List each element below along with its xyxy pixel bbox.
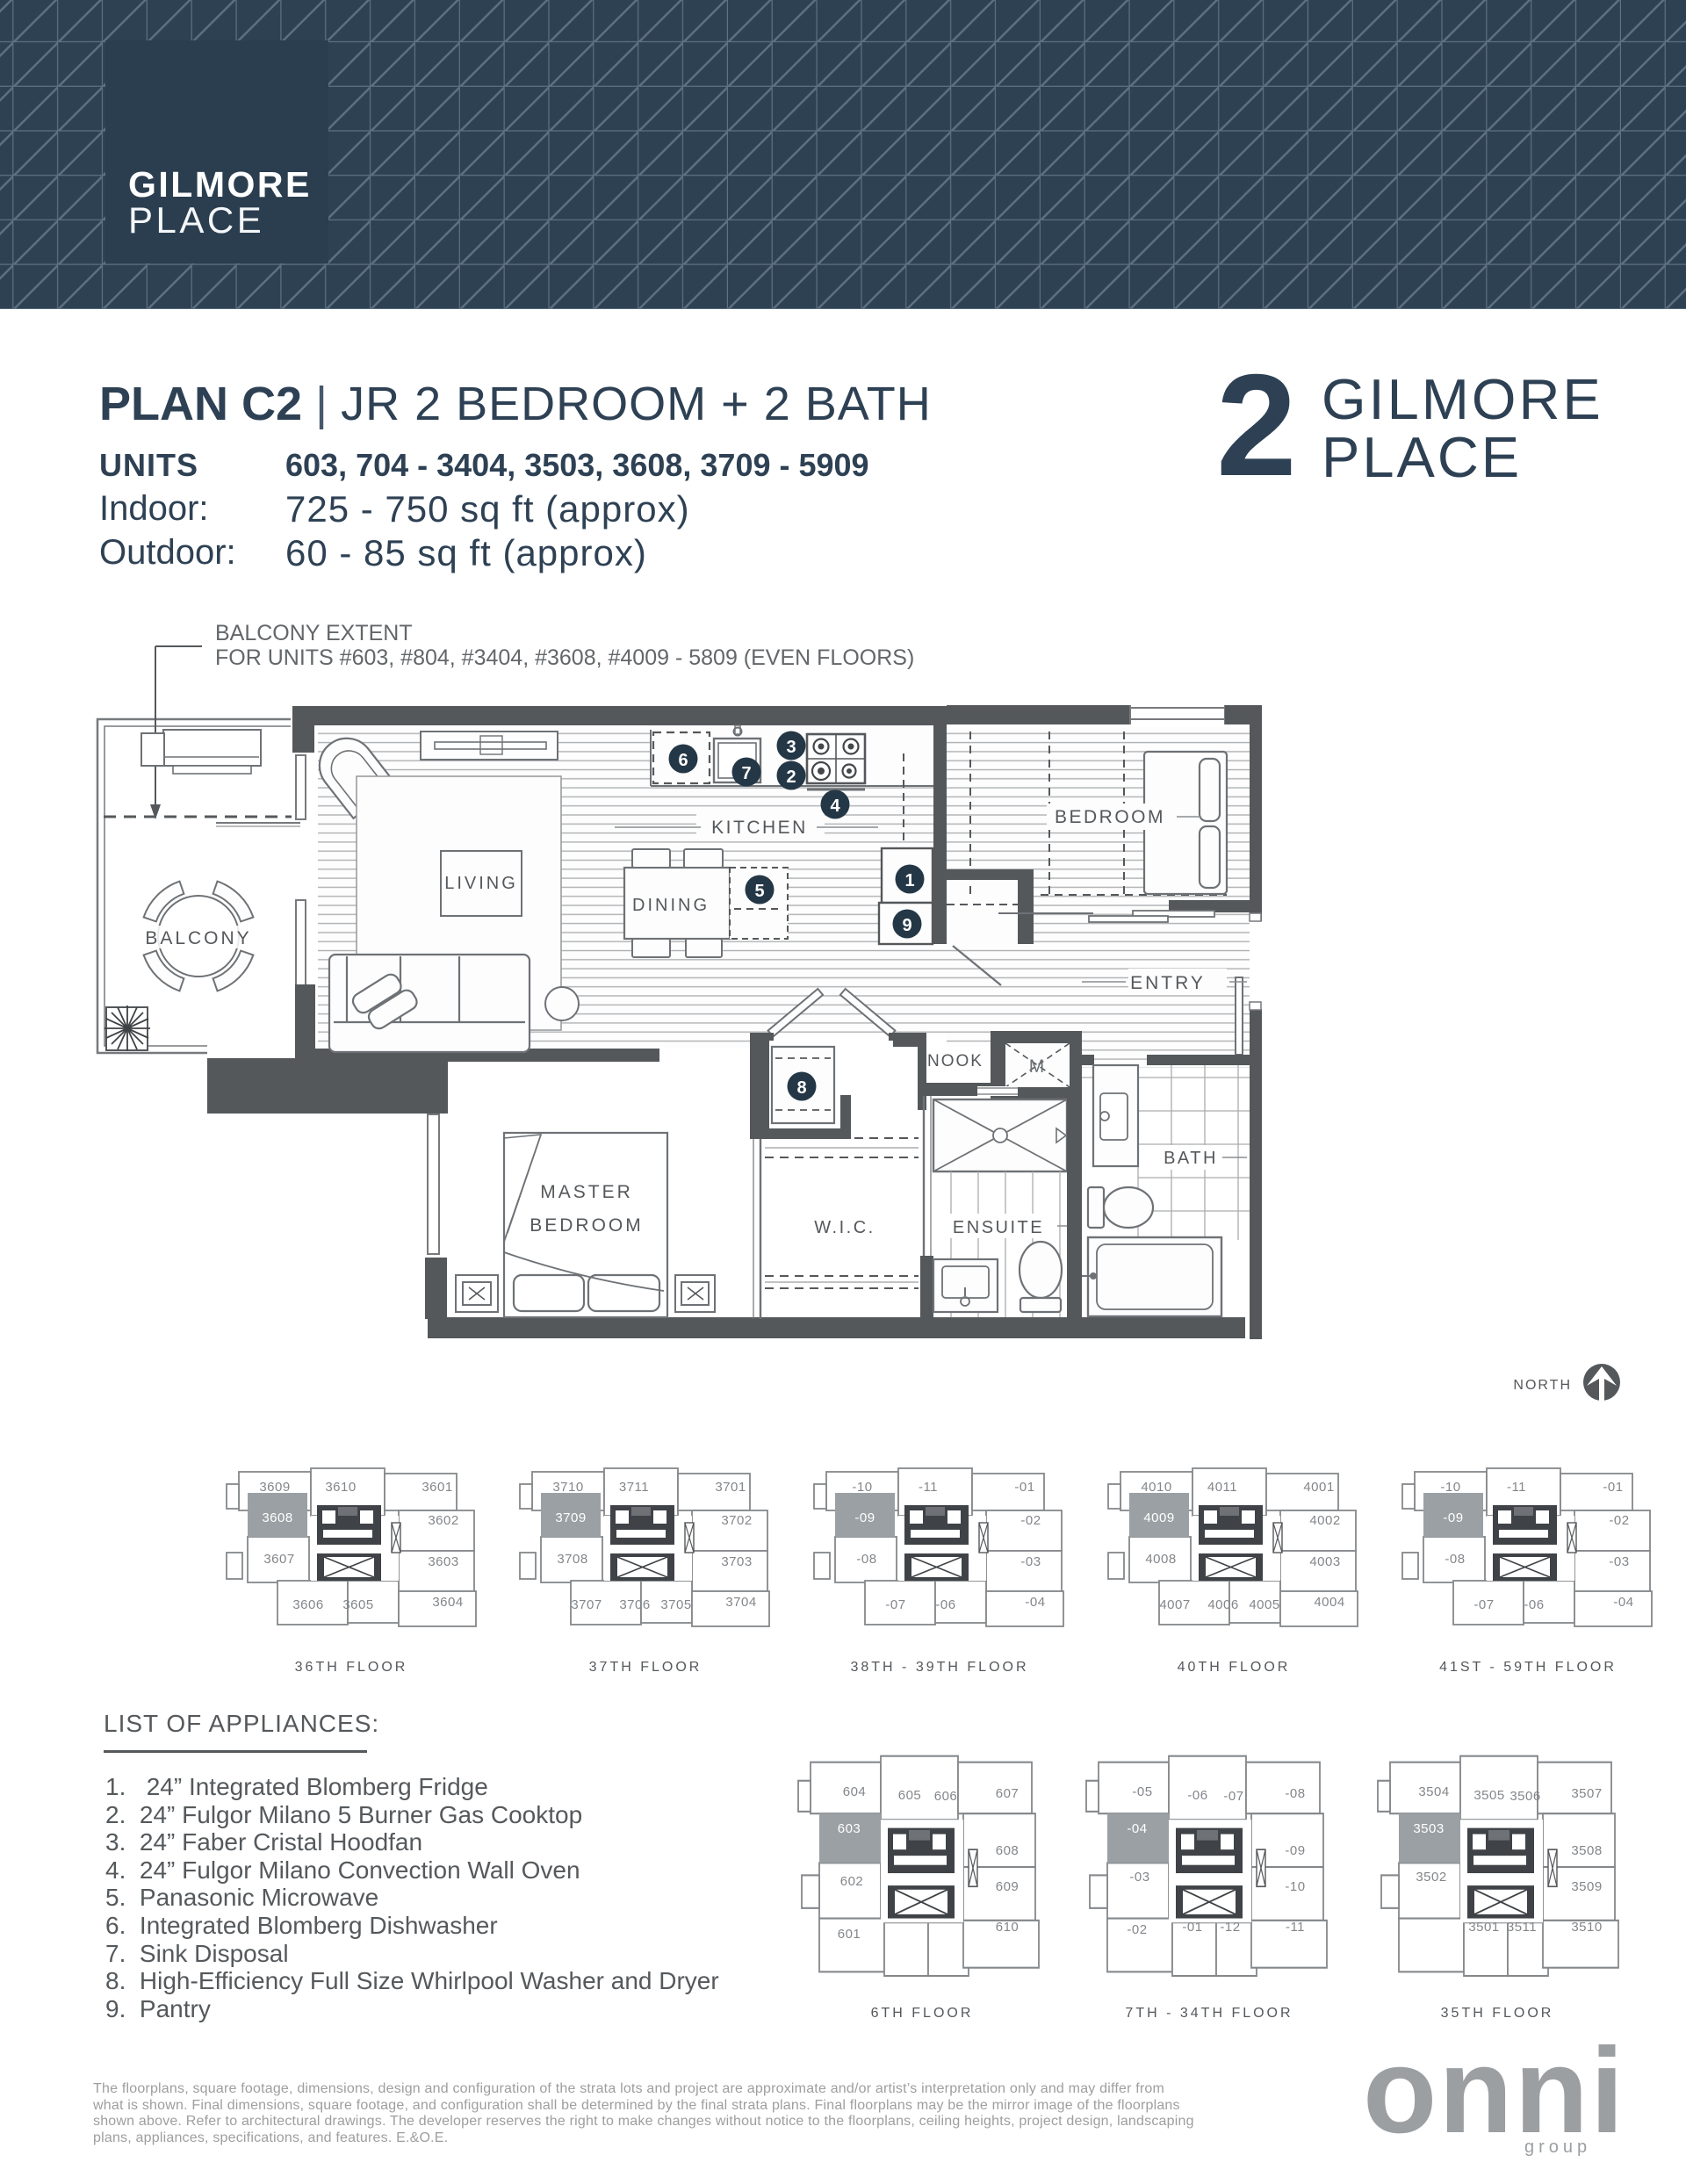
- svg-text:7TH - 34TH FLOOR: 7TH - 34TH FLOOR: [1125, 2006, 1293, 2021]
- svg-text:37TH FLOOR: 37TH FLOOR: [589, 1660, 702, 1675]
- svg-text:6: 6: [678, 751, 688, 770]
- svg-text:609: 609: [996, 1879, 1020, 1894]
- svg-text:3601: 3601: [421, 1480, 452, 1495]
- svg-text:-09: -09: [1443, 1510, 1463, 1525]
- svg-text:3710: 3710: [552, 1480, 583, 1495]
- svg-text:9: 9: [902, 916, 911, 935]
- svg-text:-04: -04: [1127, 1821, 1147, 1836]
- svg-text:3606: 3606: [292, 1597, 323, 1612]
- svg-text:BEDROOM: BEDROOM: [530, 1215, 644, 1236]
- svg-text:601: 601: [838, 1927, 861, 1942]
- svg-text:3711: 3711: [619, 1480, 649, 1495]
- svg-text:-12: -12: [1220, 1920, 1240, 1935]
- svg-text:4002: 4002: [1309, 1513, 1340, 1528]
- svg-text:BATH: BATH: [1164, 1149, 1218, 1168]
- svg-text:4001: 4001: [1303, 1480, 1334, 1495]
- svg-text:8: 8: [796, 1078, 806, 1098]
- svg-text:3704: 3704: [725, 1595, 756, 1610]
- svg-text:40TH FLOOR: 40TH FLOOR: [1178, 1660, 1291, 1675]
- svg-text:-08: -08: [856, 1552, 876, 1567]
- svg-text:602: 602: [840, 1874, 864, 1889]
- svg-text:7: 7: [741, 764, 751, 783]
- svg-text:-07: -07: [885, 1597, 905, 1612]
- svg-text:-08: -08: [1445, 1552, 1465, 1567]
- svg-text:3501: 3501: [1468, 1920, 1499, 1935]
- svg-text:-09: -09: [854, 1510, 875, 1525]
- svg-text:4006: 4006: [1207, 1597, 1238, 1612]
- svg-text:-07: -07: [1223, 1789, 1243, 1804]
- svg-text:ENSUITE: ENSUITE: [953, 1218, 1044, 1237]
- svg-text:DINING: DINING: [632, 896, 710, 915]
- svg-text:-03: -03: [1609, 1554, 1629, 1569]
- svg-text:3508: 3508: [1571, 1843, 1602, 1858]
- svg-text:1: 1: [904, 871, 914, 890]
- svg-text:-02: -02: [1609, 1513, 1629, 1528]
- svg-text:5: 5: [754, 882, 764, 901]
- svg-text:-03: -03: [1129, 1870, 1149, 1885]
- svg-text:3609: 3609: [259, 1480, 290, 1495]
- svg-text:-02: -02: [1127, 1922, 1147, 1937]
- svg-text:NORTH: NORTH: [1513, 1378, 1572, 1393]
- svg-text:LIVING: LIVING: [444, 874, 518, 893]
- svg-text:4011: 4011: [1207, 1480, 1237, 1495]
- svg-text:-08: -08: [1285, 1786, 1305, 1801]
- svg-text:BALCONY: BALCONY: [145, 928, 251, 948]
- svg-text:-07: -07: [1473, 1597, 1494, 1612]
- svg-text:3507: 3507: [1571, 1786, 1602, 1801]
- svg-text:3608: 3608: [262, 1510, 292, 1525]
- svg-text:3505: 3505: [1473, 1788, 1504, 1803]
- svg-text:4004: 4004: [1314, 1595, 1344, 1610]
- svg-text:3610: 3610: [325, 1480, 356, 1495]
- svg-text:2: 2: [786, 768, 796, 787]
- svg-text:3509: 3509: [1571, 1879, 1602, 1894]
- svg-text:-06: -06: [1524, 1597, 1544, 1612]
- svg-text:608: 608: [996, 1843, 1020, 1858]
- svg-text:-05: -05: [1132, 1784, 1152, 1799]
- svg-text:3605: 3605: [342, 1597, 373, 1612]
- svg-text:604: 604: [843, 1784, 867, 1799]
- svg-text:4005: 4005: [1249, 1597, 1279, 1612]
- svg-text:-01: -01: [1014, 1480, 1034, 1495]
- svg-text:610: 610: [996, 1920, 1020, 1935]
- svg-text:4008: 4008: [1145, 1552, 1176, 1567]
- svg-text:3701: 3701: [715, 1480, 746, 1495]
- svg-text:-04: -04: [1025, 1595, 1045, 1610]
- svg-text:41ST - 59TH FLOOR: 41ST - 59TH FLOOR: [1439, 1660, 1617, 1675]
- svg-text:4010: 4010: [1141, 1480, 1171, 1495]
- svg-text:3602: 3602: [428, 1513, 458, 1528]
- svg-text:3603: 3603: [428, 1554, 458, 1569]
- svg-text:3708: 3708: [557, 1552, 587, 1567]
- svg-text:3702: 3702: [721, 1513, 752, 1528]
- svg-text:-11: -11: [1507, 1480, 1526, 1495]
- svg-text:3607: 3607: [263, 1552, 294, 1567]
- svg-text:3502: 3502: [1416, 1870, 1446, 1885]
- svg-text:BEDROOM: BEDROOM: [1055, 807, 1165, 827]
- svg-text:KITCHEN: KITCHEN: [711, 818, 808, 838]
- svg-text:607: 607: [996, 1786, 1020, 1801]
- svg-text:36TH FLOOR: 36TH FLOOR: [295, 1660, 408, 1675]
- svg-text:3604: 3604: [432, 1595, 463, 1610]
- svg-text:3503: 3503: [1413, 1821, 1444, 1836]
- svg-text:4003: 4003: [1309, 1554, 1340, 1569]
- svg-text:-02: -02: [1020, 1513, 1041, 1528]
- svg-text:-06: -06: [1187, 1788, 1207, 1803]
- svg-text:-06: -06: [935, 1597, 955, 1612]
- svg-text:606: 606: [934, 1789, 958, 1804]
- svg-text:603: 603: [838, 1821, 861, 1836]
- svg-text:35TH FLOOR: 35TH FLOOR: [1441, 2006, 1554, 2021]
- svg-text:4009: 4009: [1143, 1510, 1174, 1525]
- svg-text:3511: 3511: [1507, 1920, 1537, 1935]
- svg-text:605: 605: [898, 1788, 922, 1803]
- svg-text:-10: -10: [852, 1480, 872, 1495]
- svg-text:3703: 3703: [721, 1554, 752, 1569]
- svg-text:3707: 3707: [571, 1597, 602, 1612]
- svg-text:-01: -01: [1182, 1920, 1202, 1935]
- svg-text:M: M: [1029, 1056, 1046, 1077]
- svg-text:-11: -11: [919, 1480, 938, 1495]
- svg-text:NOOK: NOOK: [927, 1052, 983, 1070]
- svg-text:3705: 3705: [660, 1597, 691, 1612]
- svg-text:38TH - 39TH FLOOR: 38TH - 39TH FLOOR: [850, 1660, 1028, 1675]
- svg-text:-11: -11: [1286, 1920, 1305, 1935]
- svg-text:-10: -10: [1440, 1480, 1460, 1495]
- svg-text:3706: 3706: [619, 1597, 650, 1612]
- svg-text:3: 3: [786, 738, 796, 757]
- svg-text:-04: -04: [1613, 1595, 1633, 1610]
- svg-text:3510: 3510: [1571, 1920, 1602, 1935]
- svg-text:MASTER: MASTER: [540, 1182, 633, 1202]
- svg-text:4: 4: [830, 796, 840, 816]
- svg-text:-01: -01: [1603, 1480, 1623, 1495]
- svg-text:4007: 4007: [1159, 1597, 1190, 1612]
- svg-text:W.I.C.: W.I.C.: [814, 1218, 875, 1237]
- svg-text:3709: 3709: [555, 1510, 586, 1525]
- svg-text:-10: -10: [1285, 1879, 1305, 1894]
- svg-text:3504: 3504: [1418, 1784, 1449, 1799]
- svg-text:3506: 3506: [1509, 1789, 1540, 1804]
- svg-text:6TH FLOOR: 6TH FLOOR: [871, 2006, 974, 2021]
- svg-text:ENTRY: ENTRY: [1130, 973, 1206, 993]
- svg-text:-09: -09: [1285, 1843, 1305, 1858]
- svg-text:-03: -03: [1020, 1554, 1041, 1569]
